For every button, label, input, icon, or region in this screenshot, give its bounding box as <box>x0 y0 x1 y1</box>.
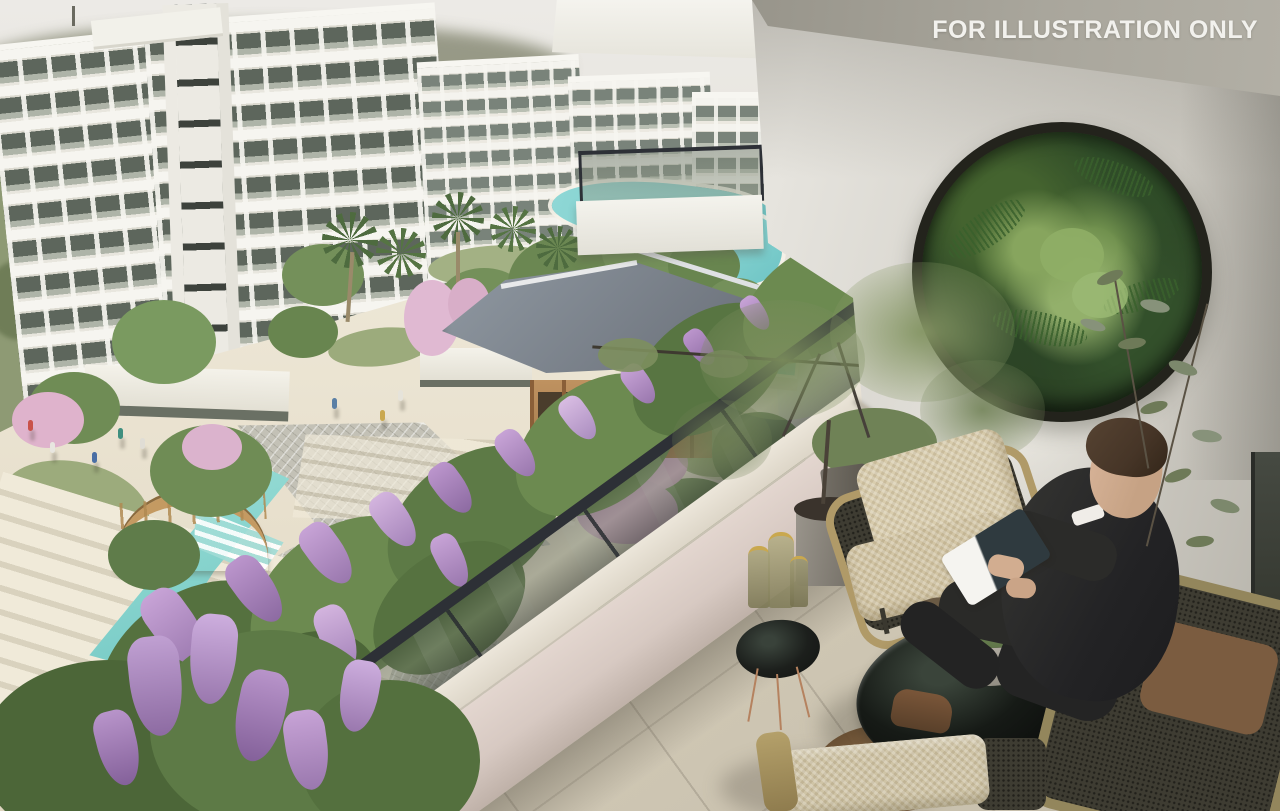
fern-frond <box>940 189 1033 268</box>
bottom-chair-arm <box>755 730 800 811</box>
blossom-tree <box>182 424 242 470</box>
person-dot <box>92 452 97 463</box>
palm-tree <box>376 228 426 278</box>
man-hand <box>1005 577 1036 599</box>
person-dot <box>118 428 123 439</box>
person-dot <box>28 420 33 431</box>
maple-foliage <box>672 400 772 480</box>
palm-tree <box>490 206 536 252</box>
balcony-view-render: FOR ILLUSTRATION ONLY <box>0 0 1280 811</box>
fern-frond <box>1069 149 1158 206</box>
cyclist-dot <box>332 398 337 409</box>
foreground-lilac-bush <box>0 600 460 811</box>
bottom-chair <box>756 720 1016 811</box>
bottom-chair-cushion <box>779 733 990 811</box>
tree <box>112 300 216 384</box>
person-dot <box>140 438 145 449</box>
antenna-tower <box>72 6 75 26</box>
blossom-tree <box>12 392 84 448</box>
branch-leaves <box>598 338 658 372</box>
tree <box>268 306 338 358</box>
watermark-text: FOR ILLUSTRATION ONLY <box>932 16 1258 45</box>
decorative-bottle <box>790 556 808 607</box>
person-dot <box>50 442 55 453</box>
decorative-bottle <box>748 546 770 608</box>
